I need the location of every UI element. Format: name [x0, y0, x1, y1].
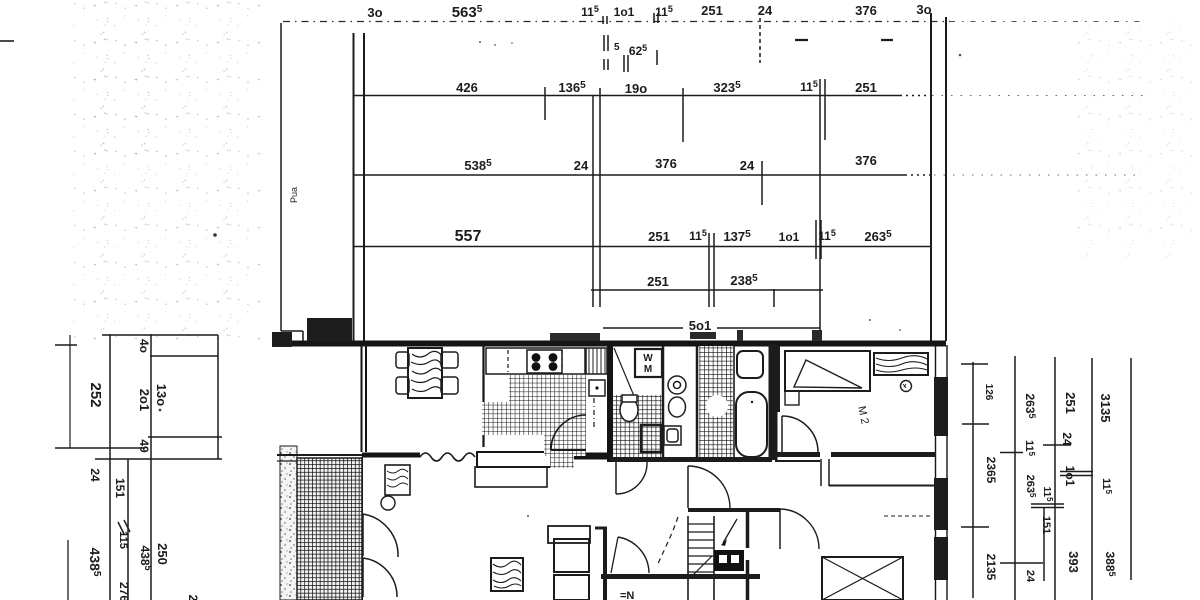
- svg-text:151: 151: [1040, 516, 1052, 534]
- svg-text:557: 557: [455, 228, 482, 245]
- svg-text:250: 250: [155, 543, 170, 565]
- svg-text:376: 376: [655, 156, 677, 171]
- svg-text:24: 24: [574, 158, 589, 173]
- svg-text:393: 393: [1066, 551, 1081, 573]
- svg-text:2365: 2365: [984, 457, 998, 484]
- svg-text:19o: 19o: [625, 81, 647, 96]
- svg-text:27o: 27o: [186, 595, 200, 600]
- svg-text:1o1: 1o1: [614, 5, 635, 19]
- svg-text:376: 376: [855, 153, 877, 168]
- svg-text:24: 24: [1024, 570, 1036, 583]
- svg-text:376: 376: [855, 3, 877, 18]
- svg-text:251: 251: [701, 3, 723, 18]
- svg-text:3135: 3135: [1098, 394, 1113, 423]
- svg-text:24: 24: [758, 3, 773, 18]
- svg-text:252: 252: [87, 382, 104, 407]
- svg-text:4o: 4o: [137, 339, 151, 353]
- svg-text:3o: 3o: [916, 2, 931, 17]
- svg-text:115: 115: [117, 531, 129, 549]
- svg-text:13o: 13o: [154, 384, 169, 406]
- svg-text:24: 24: [740, 158, 755, 173]
- svg-text:251: 251: [648, 229, 670, 244]
- svg-text:251: 251: [855, 80, 877, 95]
- svg-text:24: 24: [1060, 432, 1074, 446]
- svg-text:1o1: 1o1: [779, 230, 800, 244]
- svg-text:5: 5: [614, 42, 620, 53]
- svg-text:W: W: [643, 353, 653, 364]
- svg-text:2135: 2135: [984, 554, 998, 581]
- svg-text:251: 251: [1063, 392, 1078, 414]
- svg-text:24: 24: [88, 468, 102, 482]
- svg-text:=N: =N: [620, 590, 634, 600]
- svg-text:426: 426: [456, 80, 478, 95]
- svg-text:3o: 3o: [367, 5, 382, 20]
- svg-text:2o1: 2o1: [137, 389, 152, 411]
- svg-text:251: 251: [647, 274, 669, 289]
- svg-text:49: 49: [137, 439, 151, 453]
- svg-text:Pua: Pua: [289, 187, 299, 203]
- svg-text:1o1: 1o1: [1063, 466, 1077, 487]
- svg-text:151: 151: [113, 478, 127, 498]
- svg-text:M: M: [644, 364, 652, 375]
- svg-text:126: 126: [983, 384, 994, 401]
- svg-text:276: 276: [117, 582, 131, 600]
- svg-text:5o1: 5o1: [689, 318, 711, 333]
